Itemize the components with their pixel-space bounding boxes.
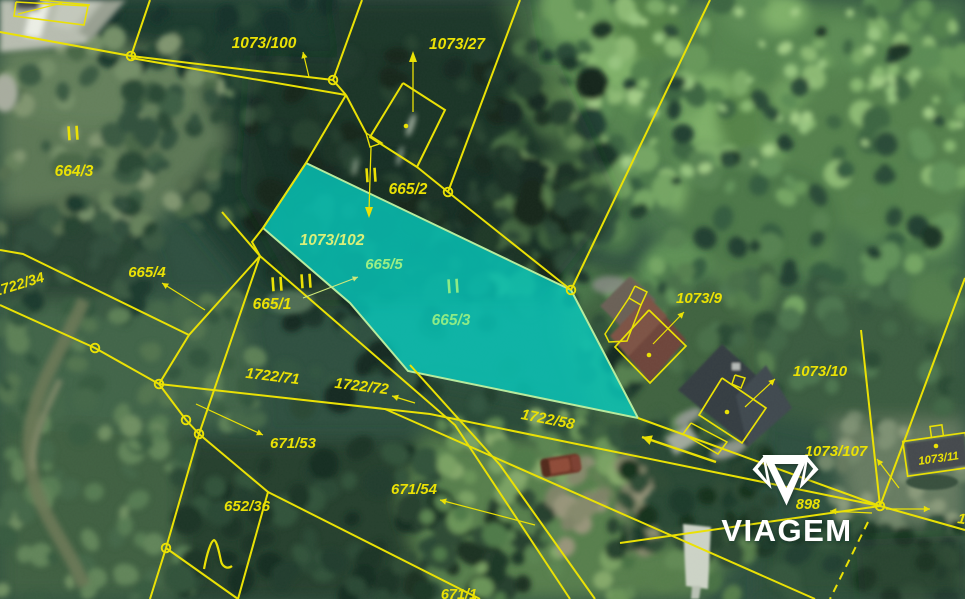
svg-text:671/53: 671/53 [270,435,317,452]
svg-text:1073/102: 1073/102 [300,232,365,249]
svg-text:665/2: 665/2 [389,181,428,198]
svg-text:664/3: 664/3 [55,163,94,180]
svg-text:665/5: 665/5 [365,256,403,273]
svg-text:665/4: 665/4 [128,264,166,281]
svg-text:1073/10: 1073/10 [793,363,848,380]
svg-text:671/1: 671/1 [441,587,477,599]
svg-text:1073/27: 1073/27 [429,36,486,53]
svg-text:665/1: 665/1 [253,296,292,313]
svg-text:1073/9: 1073/9 [676,290,723,307]
svg-text:1073/107: 1073/107 [805,443,868,460]
svg-text:VIAGEM: VIAGEM [721,513,852,548]
svg-text:1073/100: 1073/100 [232,35,297,52]
svg-text:652/36: 652/36 [224,498,271,515]
svg-text:671/54: 671/54 [391,481,438,498]
svg-text:665/3: 665/3 [432,312,471,329]
svg-text:898: 898 [796,497,821,513]
